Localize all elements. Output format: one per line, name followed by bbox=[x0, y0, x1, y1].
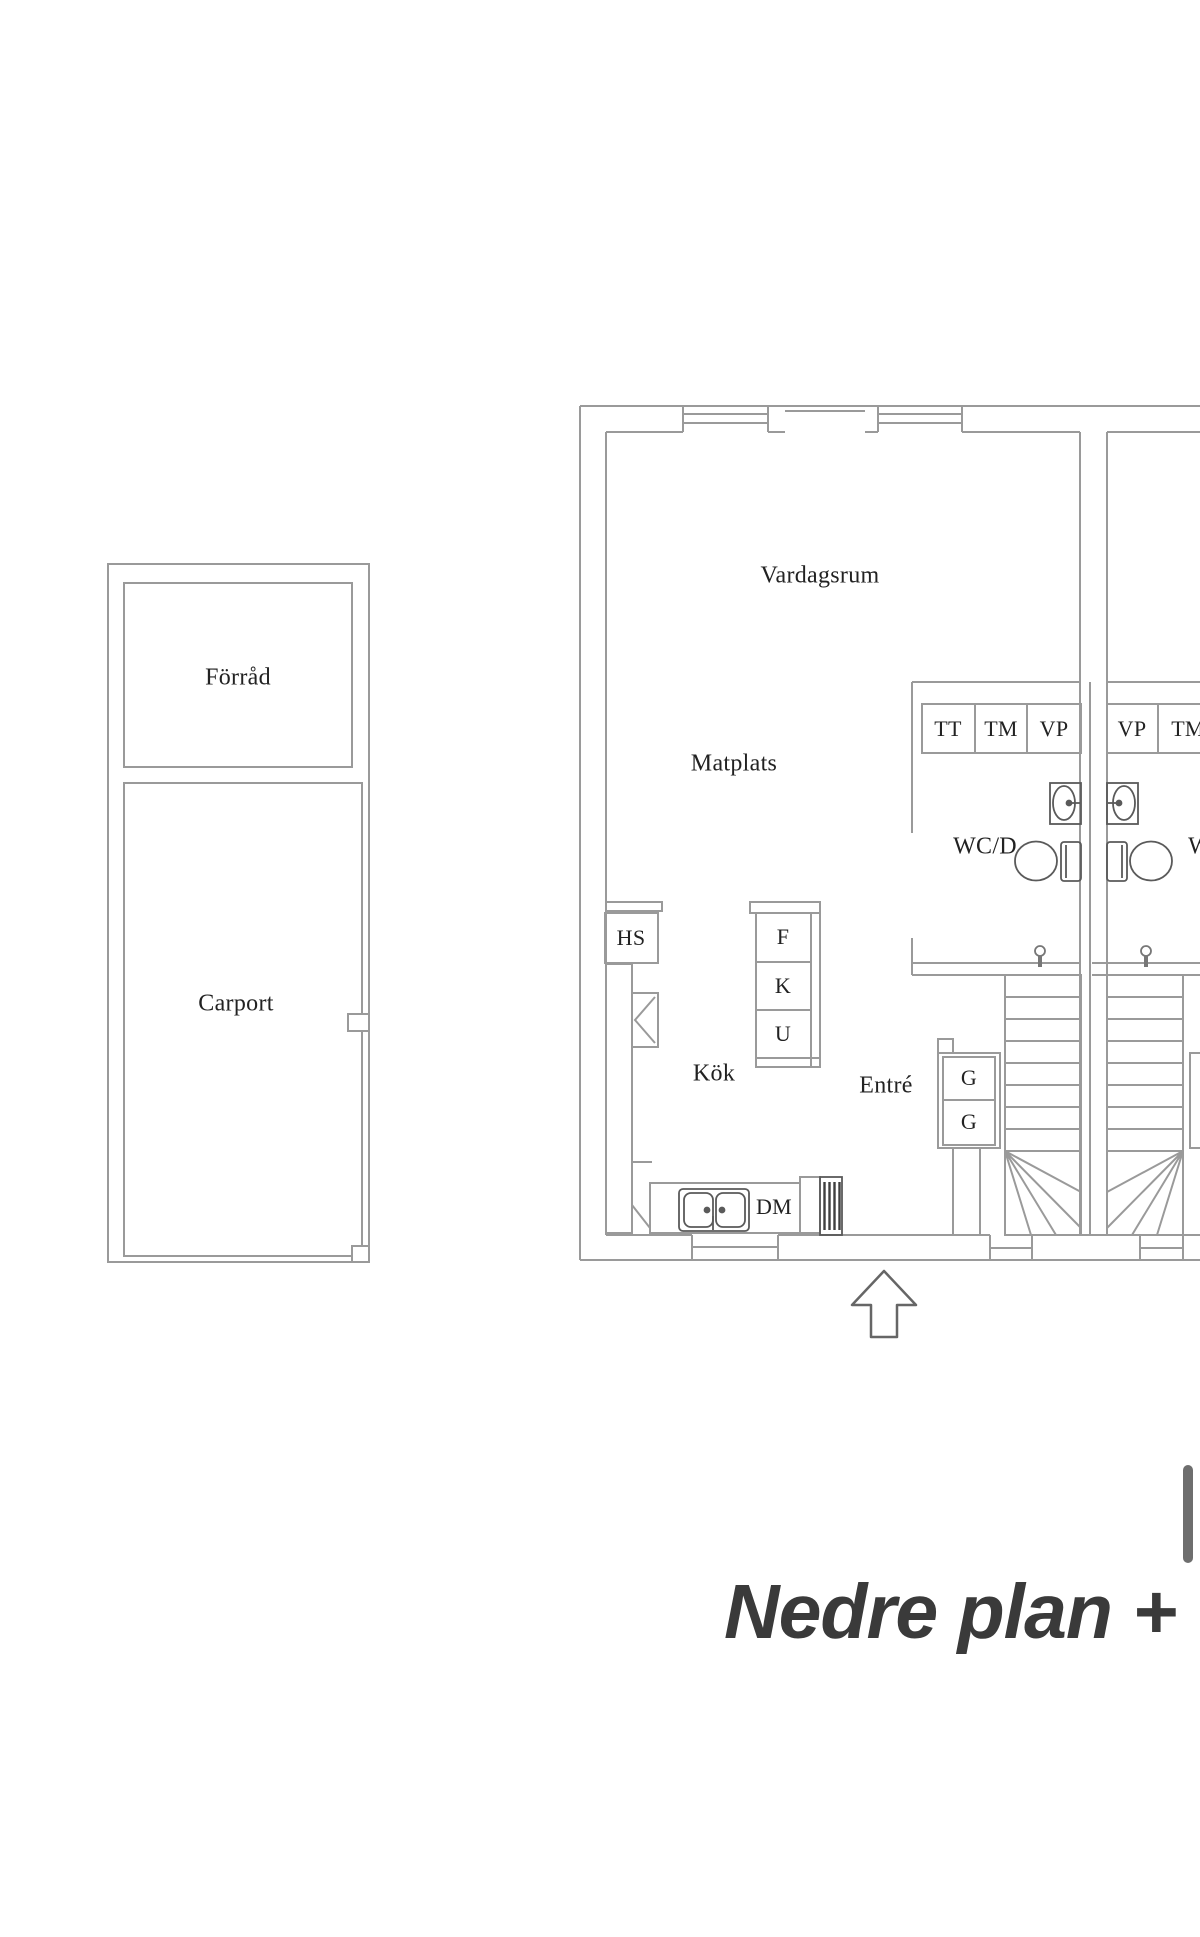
toilet-right-icon bbox=[1107, 842, 1172, 882]
dining-label: Matplats bbox=[691, 751, 777, 778]
carport-room bbox=[124, 783, 362, 1256]
radiator-icon bbox=[820, 1177, 842, 1235]
wardrobe-right-unit bbox=[1190, 1053, 1200, 1148]
appliance-vp-right-label: VP bbox=[1118, 716, 1147, 742]
carport-post-icon bbox=[352, 1246, 369, 1262]
storage-label: Förråd bbox=[205, 665, 271, 692]
living-room-label: Vardagsrum bbox=[761, 563, 880, 590]
kitchen-sink-icon bbox=[679, 1189, 749, 1231]
entrance-doors bbox=[692, 1235, 1183, 1260]
floorplan-page: Förråd Carport Vardagsrum Matplats TT TM… bbox=[0, 0, 1200, 1937]
stairs-right bbox=[1107, 975, 1183, 1235]
plan-title: Nedre plan + C bbox=[724, 1568, 1200, 1657]
appliance-tm-label: TM bbox=[984, 716, 1018, 742]
wardrobe-bottom-label: G bbox=[961, 1109, 977, 1135]
toilet-left-icon bbox=[1015, 842, 1081, 882]
entrance-arrow-icon bbox=[852, 1271, 916, 1337]
bathroom-sink-left-icon bbox=[1050, 783, 1081, 824]
stairs-left bbox=[1005, 975, 1081, 1235]
bathroom-sink-right-icon bbox=[1107, 783, 1138, 824]
dishwasher-label: DM bbox=[756, 1194, 792, 1220]
wc-right-label: WC/D bbox=[1188, 834, 1200, 861]
top-windows bbox=[683, 411, 962, 423]
wardrobe-unit bbox=[938, 1039, 1200, 1148]
wc-left-label: WC/D bbox=[953, 834, 1017, 861]
kitchen-counter bbox=[606, 964, 632, 1233]
oven-label: U bbox=[775, 1021, 791, 1047]
fridge-label: F bbox=[777, 924, 790, 950]
appliance-tt-label: TT bbox=[934, 716, 961, 742]
carport-hinge-icon bbox=[348, 1014, 369, 1031]
wardrobe-top-label: G bbox=[961, 1065, 977, 1091]
logo-bar-fragment bbox=[1183, 1465, 1193, 1563]
carport-label: Carport bbox=[198, 991, 273, 1018]
hs-label: HS bbox=[617, 925, 646, 951]
freezer-label: K bbox=[775, 973, 791, 999]
kitchen-label: Kök bbox=[693, 1061, 735, 1088]
appliance-vp-label: VP bbox=[1040, 716, 1069, 742]
appliance-tm-right-label: TM bbox=[1171, 716, 1200, 742]
party-wall bbox=[1080, 432, 1107, 1235]
entry-label: Entré bbox=[859, 1073, 912, 1100]
